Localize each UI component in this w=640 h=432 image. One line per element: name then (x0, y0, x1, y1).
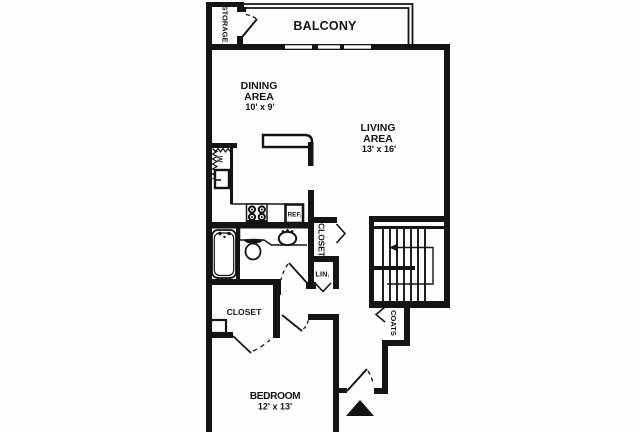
svg-text:CLOSET: CLOSET (227, 307, 263, 317)
svg-text:BEDROOM: BEDROOM (250, 391, 300, 402)
svg-text:12' x 13': 12' x 13' (258, 402, 292, 412)
svg-text:CLOSET: CLOSET (316, 223, 326, 257)
svg-text:13' x 16': 13' x 16' (362, 144, 396, 154)
svg-text:STORAGE: STORAGE (221, 6, 230, 43)
svg-text:W: W (216, 156, 223, 163)
svg-text:LIN.: LIN. (315, 270, 329, 279)
svg-text:REF.: REF. (288, 212, 302, 219)
svg-text:BALCONY: BALCONY (293, 19, 357, 33)
svg-text:COATS: COATS (389, 310, 398, 336)
svg-text:10' x 9': 10' x 9' (245, 102, 274, 112)
